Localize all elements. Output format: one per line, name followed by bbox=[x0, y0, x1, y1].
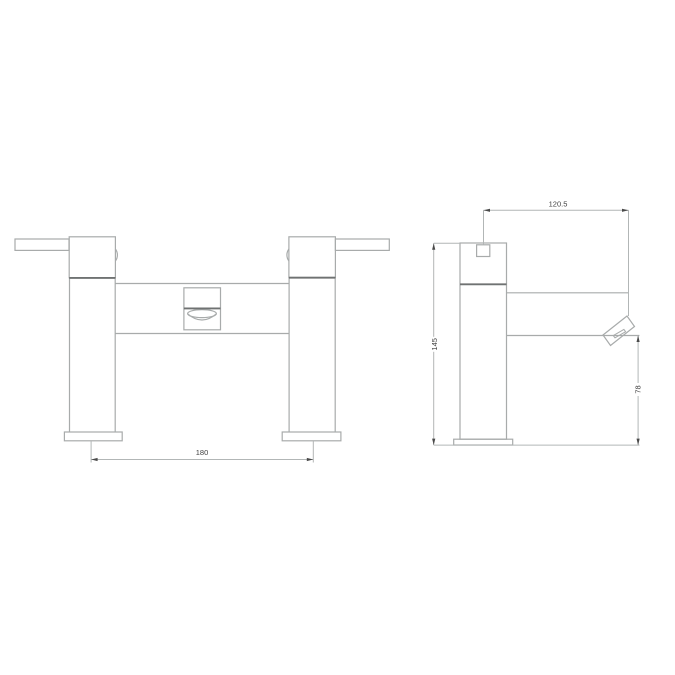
svg-text:120.5: 120.5 bbox=[549, 199, 568, 208]
svg-text:180: 180 bbox=[196, 448, 209, 457]
svg-text:145: 145 bbox=[430, 338, 439, 351]
svg-text:78: 78 bbox=[634, 385, 643, 393]
